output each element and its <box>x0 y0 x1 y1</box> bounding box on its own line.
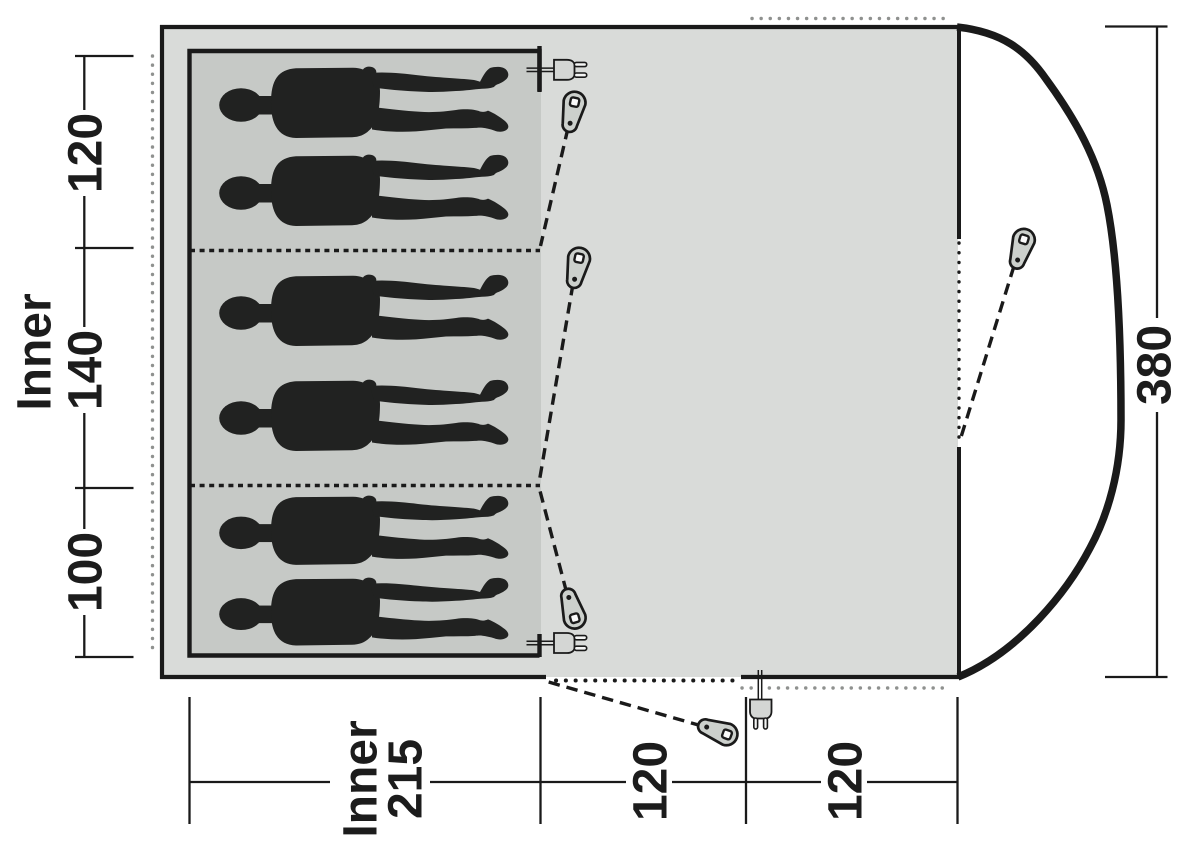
svg-text:215: 215 <box>379 739 432 819</box>
svg-text:120: 120 <box>819 741 872 821</box>
svg-text:Inner: Inner <box>8 293 61 410</box>
svg-text:120: 120 <box>624 741 677 821</box>
svg-text:120: 120 <box>59 113 112 193</box>
svg-text:140: 140 <box>59 330 112 410</box>
svg-text:380: 380 <box>1128 325 1180 405</box>
svg-text:100: 100 <box>59 532 112 612</box>
